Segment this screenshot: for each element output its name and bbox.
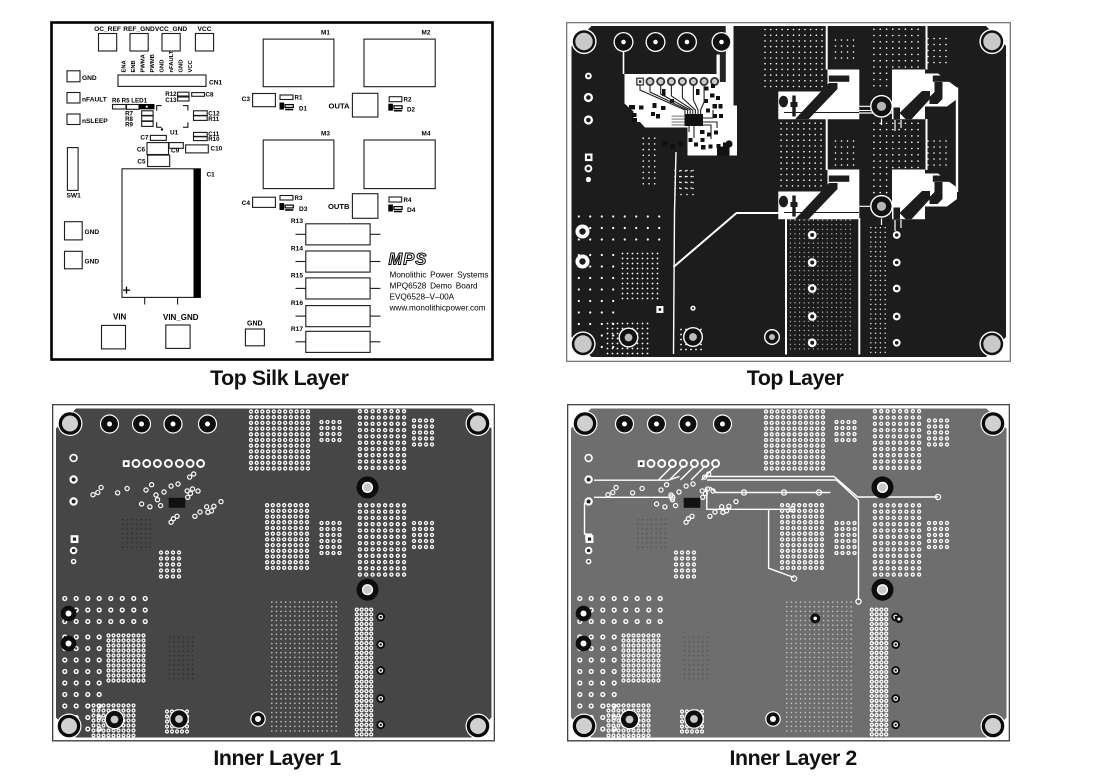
svg-text:R1: R1 [295, 95, 303, 102]
svg-text:VCC: VCC [198, 26, 212, 33]
svg-text:MPS: MPS [389, 251, 428, 269]
svg-text:R11: R11 [208, 116, 220, 123]
svg-text:SW1: SW1 [67, 193, 82, 200]
svg-text:CN1: CN1 [209, 80, 223, 87]
svg-text:U1: U1 [170, 130, 179, 137]
svg-text:PWMA: PWMA [141, 53, 147, 72]
svg-text:nFAULT: nFAULT [169, 50, 175, 72]
svg-text:C10: C10 [211, 146, 223, 153]
svg-text:MPQ6528 Demo Board: MPQ6528 Demo Board [390, 282, 479, 291]
svg-text:M1: M1 [321, 30, 330, 37]
svg-text:R16: R16 [291, 300, 303, 307]
svg-text:C5: C5 [137, 159, 146, 166]
svg-text:www.monolithicpower.com: www.monolithicpower.com [389, 304, 486, 313]
svg-text:PWMB: PWMB [150, 54, 156, 72]
svg-text:REF_GND: REF_GND [123, 26, 155, 33]
svg-text:M2: M2 [422, 30, 431, 37]
svg-text:VIN_GND: VIN_GND [163, 313, 199, 322]
svg-text:M4: M4 [422, 131, 431, 138]
svg-text:Monolithic Power Systems: Monolithic Power Systems [390, 271, 489, 280]
svg-text:GND: GND [82, 75, 97, 82]
svg-text:R14: R14 [291, 246, 303, 253]
svg-text:C13: C13 [165, 97, 177, 104]
svg-text:R15: R15 [291, 273, 303, 280]
svg-text:R4: R4 [404, 197, 412, 204]
svg-text:VIN: VIN [113, 313, 127, 322]
svg-text:OC_REF: OC_REF [94, 26, 121, 33]
svg-text:D4: D4 [407, 207, 416, 214]
svg-text:OUTB: OUTB [328, 202, 350, 211]
svg-text:GND: GND [179, 60, 185, 73]
svg-text:D3: D3 [299, 206, 308, 213]
svg-text:ENB: ENB [131, 60, 137, 72]
svg-text:GND: GND [160, 60, 166, 73]
svg-text:OUTA: OUTA [329, 102, 350, 111]
svg-text:R3: R3 [295, 195, 303, 202]
svg-text:C4: C4 [242, 200, 251, 207]
svg-text:D1: D1 [299, 106, 307, 113]
svg-text:C6: C6 [137, 147, 146, 154]
svg-text:D2: D2 [407, 107, 415, 114]
svg-text:C3: C3 [242, 96, 251, 103]
svg-text:VCC: VCC [188, 59, 194, 72]
svg-text:C1: C1 [207, 172, 216, 179]
svg-text:GND: GND [85, 259, 100, 266]
svg-text:R2: R2 [404, 97, 412, 104]
svg-text:C8: C8 [206, 92, 214, 99]
svg-text:EVQ6528–V–00A: EVQ6528–V–00A [390, 293, 455, 302]
svg-text:C7: C7 [140, 135, 149, 142]
svg-text:R17: R17 [291, 326, 303, 333]
svg-text:VCC_GND: VCC_GND [155, 26, 187, 33]
svg-text:R10: R10 [208, 136, 220, 143]
svg-text:GND: GND [85, 229, 100, 236]
svg-text:M3: M3 [321, 131, 330, 138]
svg-text:GND: GND [247, 321, 263, 328]
svg-text:ENA: ENA [122, 59, 128, 72]
svg-text:nFAULT: nFAULT [82, 97, 107, 104]
svg-text:C9: C9 [171, 148, 180, 155]
svg-text:R13: R13 [291, 218, 303, 225]
svg-text:nSLEEP: nSLEEP [82, 118, 108, 125]
svg-text:R9: R9 [125, 121, 133, 128]
svg-text:R6 R5 LED1: R6 R5 LED1 [112, 98, 148, 105]
